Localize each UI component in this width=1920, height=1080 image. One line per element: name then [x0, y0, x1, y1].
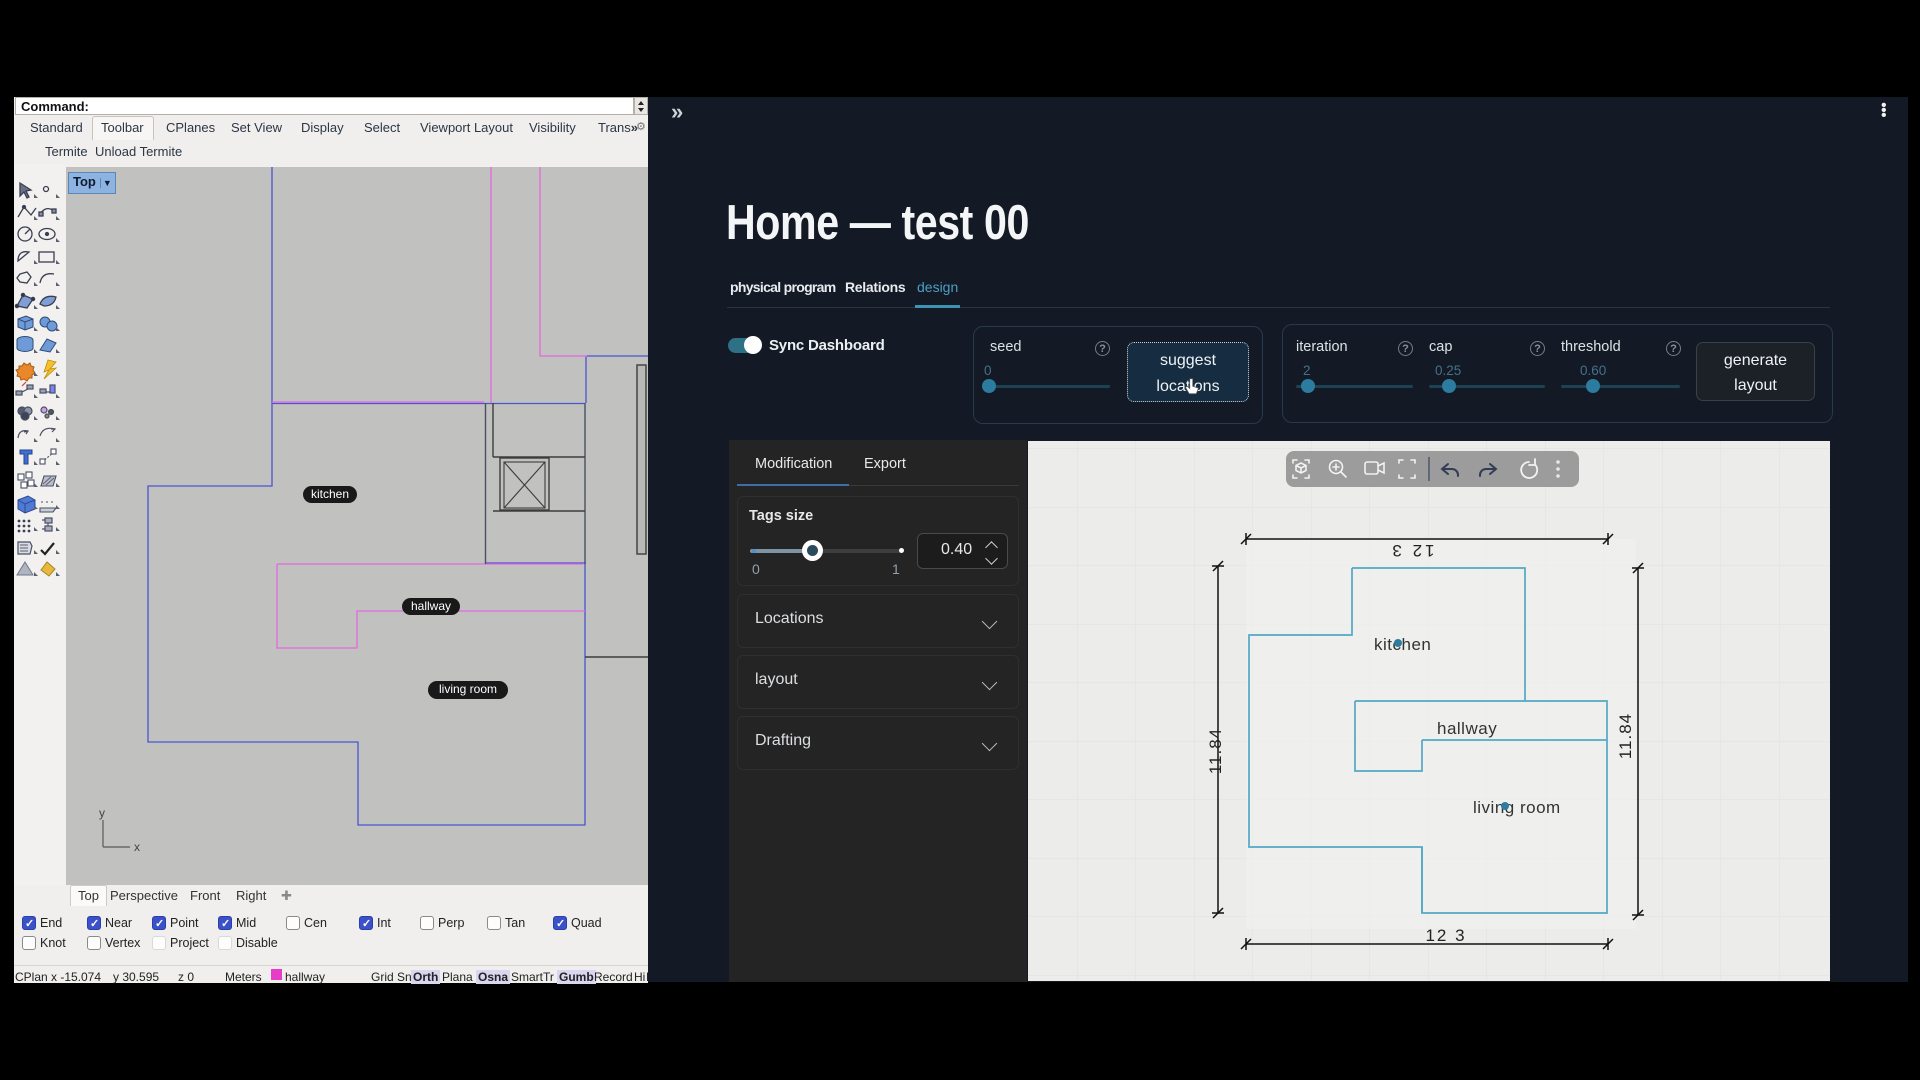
svg-text:kitchen: kitchen — [1374, 635, 1431, 654]
svg-text:hallway: hallway — [1437, 719, 1497, 738]
svg-text:living room: living room — [1473, 798, 1561, 817]
svg-text:y: y — [99, 806, 105, 820]
svg-text:11.84: 11.84 — [1616, 713, 1635, 759]
svg-text:12 3: 12 3 — [1389, 541, 1434, 560]
svg-text:x: x — [134, 840, 140, 854]
svg-text:11.84: 11.84 — [1206, 728, 1225, 774]
svg-text:12 3: 12 3 — [1425, 926, 1466, 945]
